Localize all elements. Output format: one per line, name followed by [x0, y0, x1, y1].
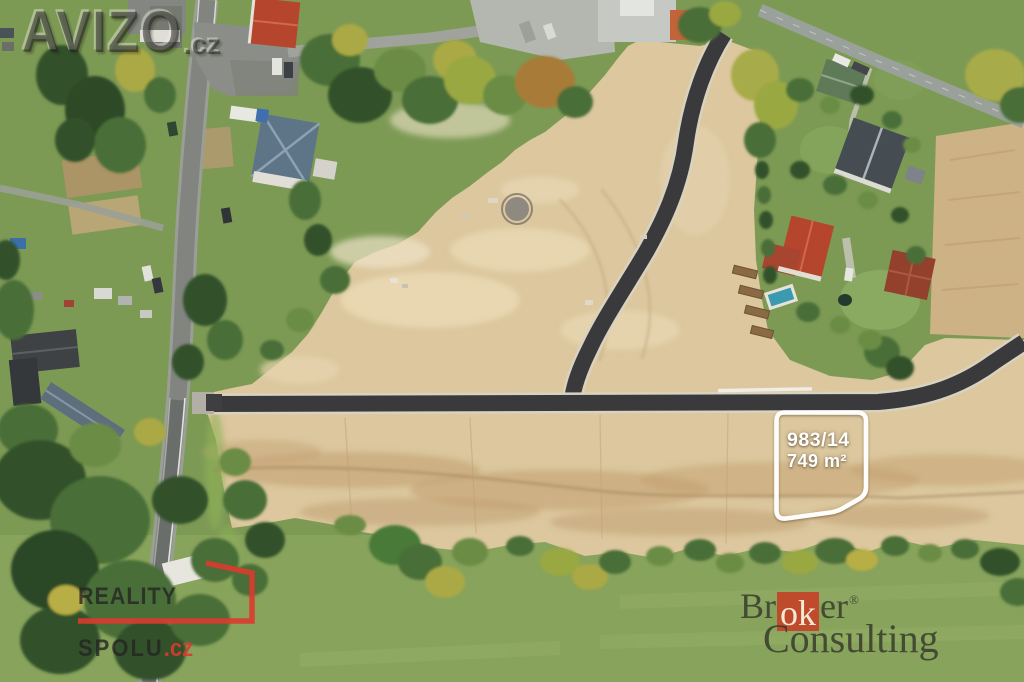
reality-spolu-logo: REALITY SPOLU.cz — [76, 560, 266, 670]
broker-line2: Consulting — [763, 619, 939, 659]
reality-line2: SPOLU — [78, 634, 164, 662]
parcel-area: 749 m² — [787, 451, 850, 472]
avizo-brand-text: AVIZO — [22, 4, 182, 62]
broker-consulting-logo: Broker® Consulting — [740, 582, 980, 677]
avizo-watermark: AVIZO .cz — [22, 10, 221, 62]
reality-line2-row: SPOLU.cz — [78, 634, 193, 663]
parcel-number: 983/14 — [787, 429, 850, 451]
garden-pond — [838, 294, 852, 306]
plot-label: 983/14 749 m² — [787, 429, 850, 472]
house-pyramid-roof — [250, 113, 319, 191]
avizo-tld-text: .cz — [184, 31, 221, 59]
reality-tld: .cz — [164, 634, 193, 662]
registered-mark: ® — [849, 592, 859, 607]
house-red-roof-top — [248, 0, 301, 48]
real-estate-aerial-listing: 983/14 749 m² AVIZO .cz REALITY SPOLU.cz… — [0, 0, 1024, 682]
gravel-pile — [502, 194, 532, 224]
garage — [313, 158, 338, 180]
farm-field — [930, 122, 1024, 338]
reality-line1: REALITY — [78, 583, 177, 611]
